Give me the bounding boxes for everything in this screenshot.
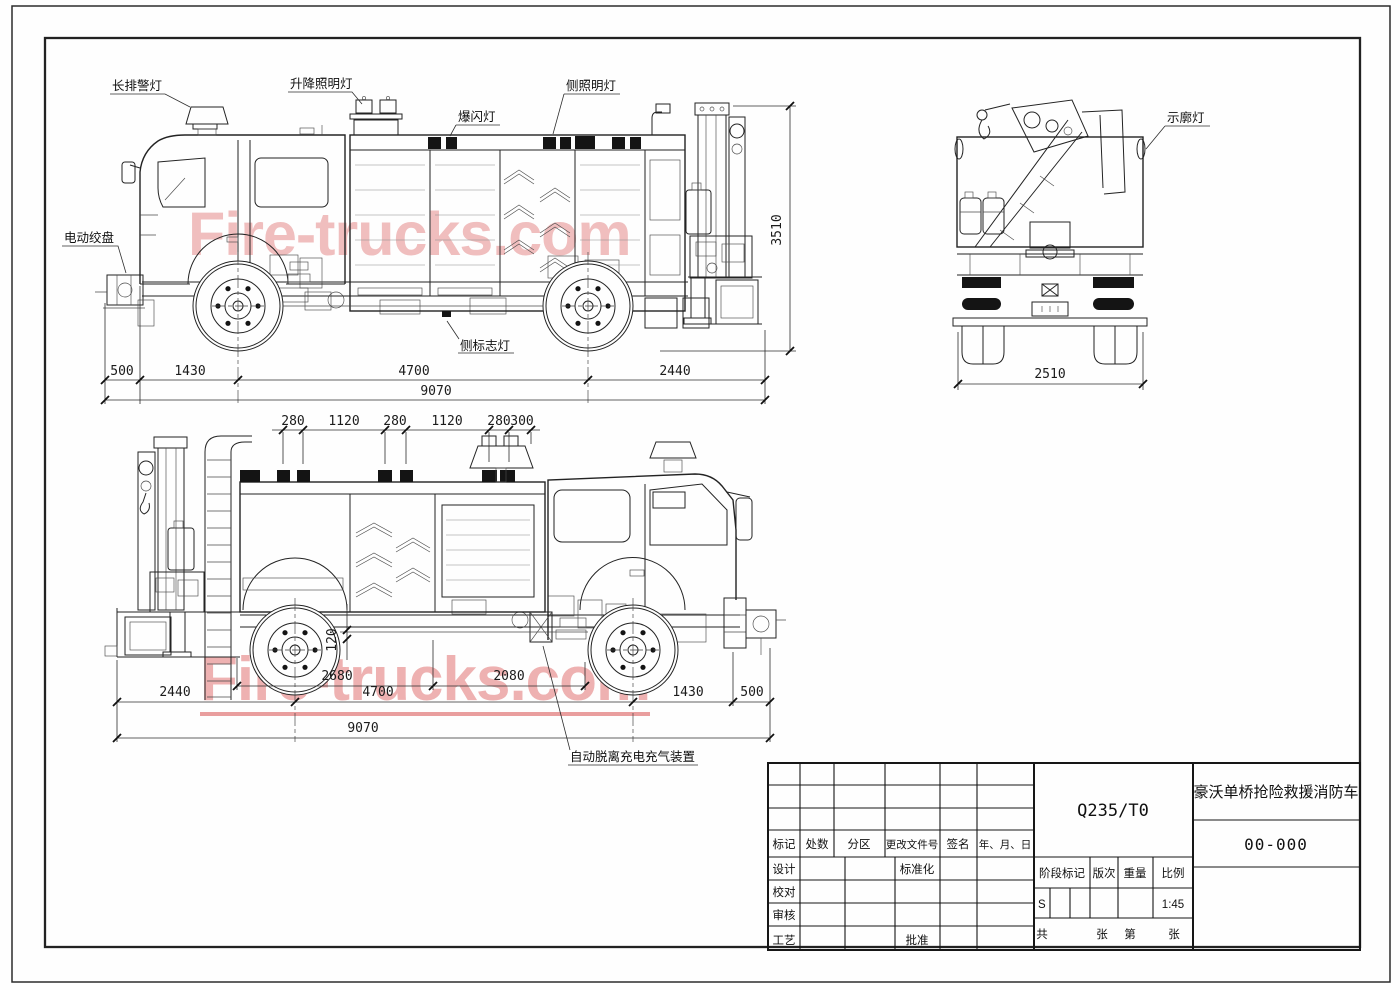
rear-bumper bbox=[953, 318, 1147, 326]
material-spec: Q235/T0 bbox=[1077, 801, 1149, 821]
rear-tanks bbox=[960, 192, 1004, 234]
th-change-doc: 更改文件号 bbox=[886, 838, 939, 851]
th-signature: 签名 bbox=[947, 837, 970, 851]
th-version: 版次 bbox=[1093, 866, 1116, 880]
dim-2440: 2440 bbox=[659, 364, 690, 379]
mirror bbox=[122, 162, 135, 183]
sheet-total-label: 共 bbox=[1036, 928, 1048, 941]
lifting-light-mast bbox=[350, 96, 402, 135]
dim-500: 500 bbox=[110, 364, 133, 379]
th-mark: 标记 bbox=[773, 838, 796, 851]
strobe-lights-2 bbox=[240, 470, 515, 482]
side-marker-lamp bbox=[442, 311, 451, 317]
row-approve: 批准 bbox=[906, 933, 929, 947]
blueprint-page: Fire-trucks.com Fire-trucks.com bbox=[0, 0, 1400, 990]
engineering-drawing: 500 1430 4700 2440 9070 3510 长排警灯 升降照明灯 … bbox=[0, 0, 1400, 990]
drawing-number: 00-000 bbox=[1244, 835, 1308, 854]
th-count: 处数 bbox=[806, 837, 829, 851]
callout-strobe: 爆闪灯 bbox=[458, 110, 496, 124]
dim-1430: 1430 bbox=[174, 364, 205, 379]
rear-clearance-lamps bbox=[955, 139, 1145, 159]
th-scale: 比例 bbox=[1162, 866, 1185, 880]
door-handle-2 bbox=[630, 570, 644, 576]
row-check: 校对 bbox=[773, 885, 796, 899]
rear-view: 2510 示廓灯 bbox=[953, 100, 1210, 390]
gooseneck-lamp-pole bbox=[652, 112, 662, 135]
fold-shelves bbox=[504, 170, 570, 272]
rear-deck bbox=[105, 608, 240, 657]
cab bbox=[122, 107, 345, 284]
dim-280b: 280 bbox=[383, 414, 406, 429]
front-winch-2 bbox=[746, 610, 786, 655]
underbody-box bbox=[645, 298, 677, 328]
sheet-no-label: 第 bbox=[1124, 927, 1136, 941]
side-view-front-left: 500 1430 4700 2440 9070 3510 长排警灯 升降照明灯 … bbox=[62, 77, 796, 404]
dim-500b: 500 bbox=[740, 685, 763, 700]
electric-winch bbox=[95, 275, 154, 326]
mirror-2 bbox=[736, 498, 752, 540]
dim-300: 300 bbox=[510, 414, 533, 429]
front-bumper-2 bbox=[724, 598, 746, 648]
callout-lift-light: 升降照明灯 bbox=[290, 77, 353, 91]
quarter-window bbox=[653, 492, 685, 508]
taillights bbox=[962, 277, 1134, 310]
row-standardize: 标准化 bbox=[900, 862, 935, 876]
callout-clearance-lamp: 示廓灯 bbox=[1167, 110, 1205, 125]
dim-2080: 2080 bbox=[493, 669, 524, 684]
dimensions-side2: 2680 2080 2440 4700 1430 500 9070 120 bbox=[113, 604, 774, 742]
dimensions-side2-top: 280 1120 280 1120 280 300 bbox=[272, 414, 540, 464]
door-window bbox=[255, 158, 328, 207]
door-window-2 bbox=[554, 490, 630, 542]
dim-280a: 280 bbox=[281, 414, 304, 429]
sheet-total-unit: 张 bbox=[1096, 928, 1108, 941]
crane-rear bbox=[975, 100, 1125, 247]
stage-mark-value: S bbox=[1038, 899, 1046, 911]
rear-wheels bbox=[962, 326, 1137, 364]
callout-side-flood: 侧照明灯 bbox=[566, 79, 616, 93]
dim-2680: 2680 bbox=[321, 669, 352, 684]
th-weight: 重量 bbox=[1124, 866, 1147, 880]
dim-9070b: 9070 bbox=[347, 721, 378, 736]
beacon-2 bbox=[650, 442, 696, 458]
th-zone: 分区 bbox=[848, 838, 871, 851]
dim-1120a: 1120 bbox=[328, 414, 359, 429]
door-handle bbox=[227, 237, 238, 242]
inner-border bbox=[45, 38, 1360, 947]
th-stage-mark: 阶段标记 bbox=[1039, 866, 1085, 880]
title-block: 标记 处数 分区 更改文件号 签名 年、月、日 设计 校对 审核 工艺 标准化 … bbox=[768, 763, 1360, 950]
sheet-no-unit: 张 bbox=[1168, 928, 1180, 941]
callout-side-marker: 侧标志灯 bbox=[460, 339, 510, 353]
scale-value: 1:45 bbox=[1162, 899, 1184, 911]
dim-280c: 280 bbox=[487, 414, 510, 429]
warning-light-bar bbox=[186, 107, 228, 124]
callout-auto-charge: 自动脱离充电充气装置 bbox=[570, 749, 695, 764]
row-design: 设计 bbox=[773, 863, 796, 876]
callout-winch: 电动绞盘 bbox=[64, 230, 114, 245]
dim-2510: 2510 bbox=[1034, 367, 1065, 382]
dim-1430b: 1430 bbox=[672, 685, 703, 700]
dim-2440b: 2440 bbox=[159, 685, 190, 700]
crane-folded bbox=[684, 103, 762, 324]
strobe-lights bbox=[428, 136, 641, 149]
dim-3510: 3510 bbox=[770, 214, 785, 245]
callout-light-bar: 长排警灯 bbox=[112, 78, 162, 93]
dim-1120b: 1120 bbox=[431, 414, 462, 429]
crane-turret bbox=[1026, 222, 1074, 259]
row-review: 审核 bbox=[773, 908, 796, 922]
equipment-body bbox=[350, 96, 709, 328]
tow-bracket bbox=[1042, 284, 1058, 296]
row-process: 工艺 bbox=[773, 934, 796, 947]
windshield-2 bbox=[650, 484, 727, 545]
th-date: 年、月、日 bbox=[979, 838, 1032, 851]
dim-4700: 4700 bbox=[398, 364, 429, 379]
product-name: 豪沃单桥抢险救援消防车 bbox=[1193, 783, 1358, 801]
dim-4700b: 4700 bbox=[362, 685, 393, 700]
equipment-body-2 bbox=[240, 436, 545, 612]
fold-shelves-2 bbox=[356, 523, 430, 597]
crane-hook bbox=[977, 110, 987, 120]
dim-9070: 9070 bbox=[420, 384, 451, 399]
dim-120: 120 bbox=[325, 628, 340, 651]
crane-hook-2 bbox=[140, 493, 149, 514]
side-view-rear-left: 280 1120 280 1120 280 300 2680 2080 2440… bbox=[105, 414, 786, 765]
